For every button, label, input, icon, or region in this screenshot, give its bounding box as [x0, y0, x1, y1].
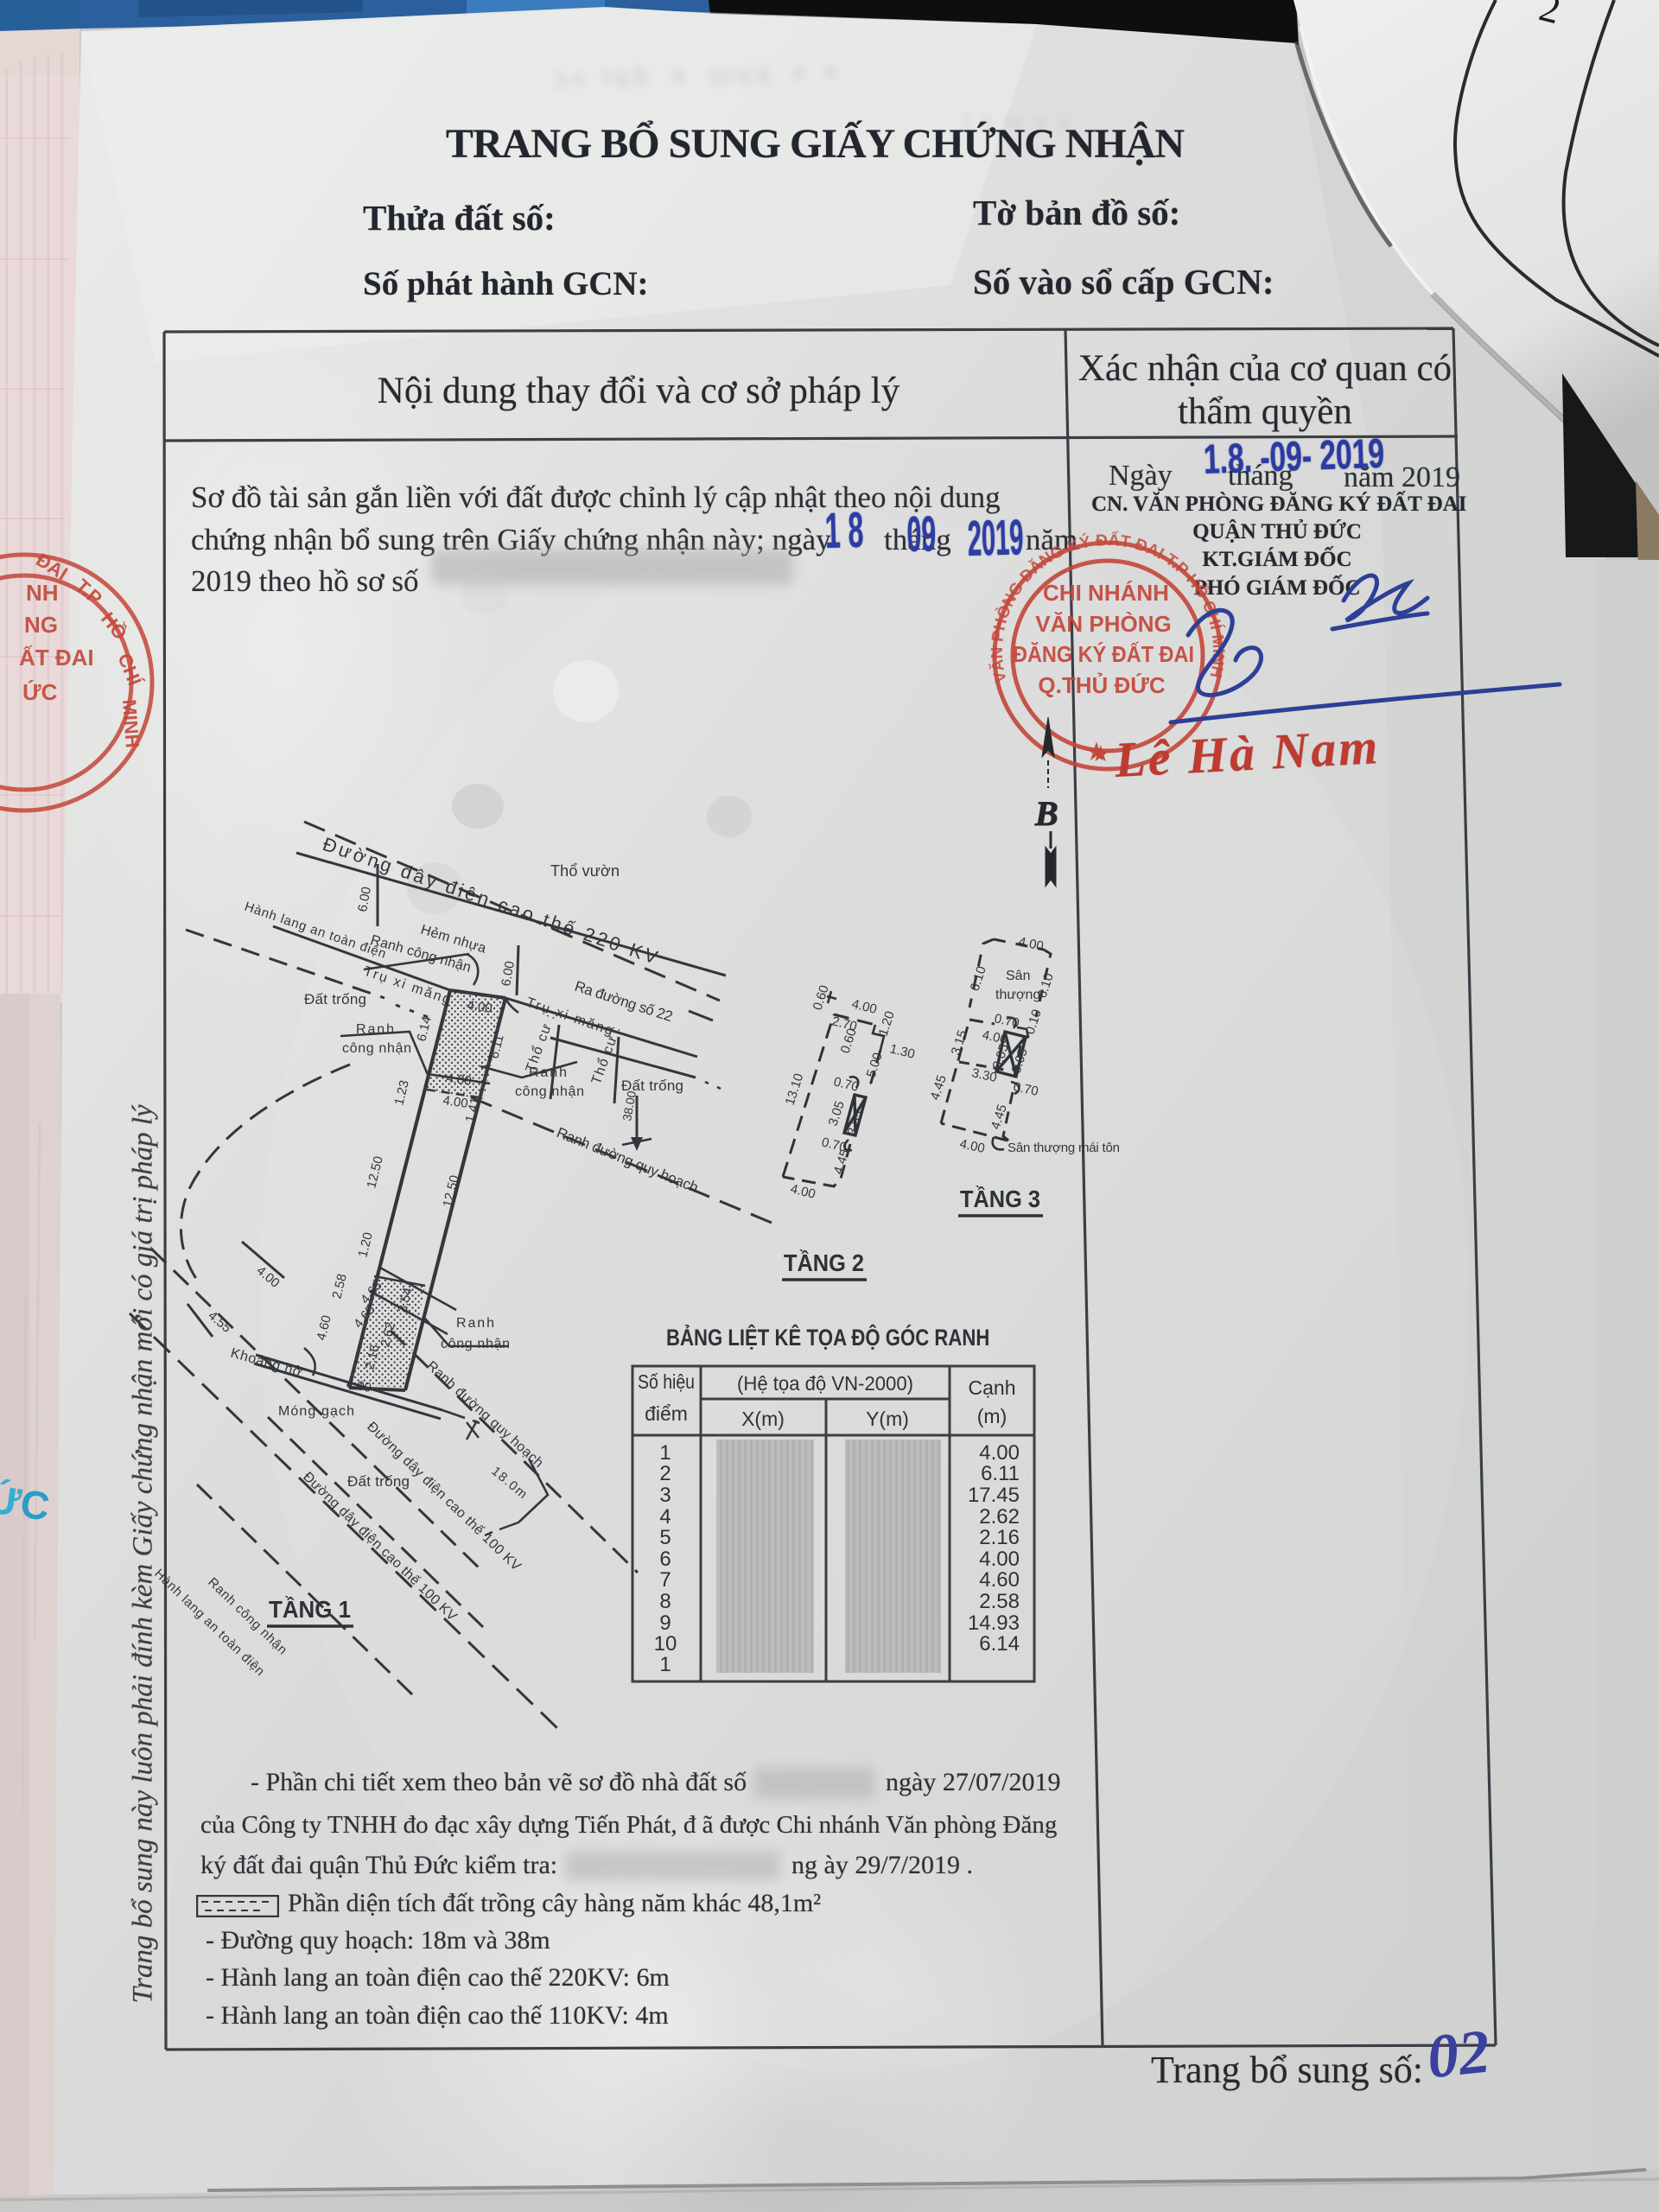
svg-text:8: 8	[659, 1590, 671, 1613]
svg-text:1: 1	[659, 1653, 671, 1676]
svg-text:Số hiệu: Số hiệu	[638, 1370, 695, 1393]
svg-text:4: 4	[659, 1505, 671, 1529]
svg-text:Cạnh: Cạnh	[969, 1376, 1016, 1399]
svg-text:2.16: 2.16	[979, 1526, 1020, 1549]
svg-text:2.58: 2.58	[979, 1590, 1020, 1613]
svg-text:6.14: 6.14	[979, 1632, 1020, 1656]
svg-text:6.11: 6.11	[981, 1462, 1020, 1485]
svg-text:4.00: 4.00	[979, 1548, 1020, 1571]
svg-text:(m): (m)	[977, 1405, 1007, 1427]
svg-text:X(m): X(m)	[741, 1408, 785, 1430]
svg-text:5: 5	[659, 1526, 671, 1549]
svg-text:10: 10	[654, 1632, 677, 1656]
svg-text:6: 6	[659, 1548, 671, 1571]
svg-text:17.45: 17.45	[968, 1484, 1020, 1507]
svg-text:2: 2	[659, 1462, 671, 1485]
svg-text:1: 1	[659, 1441, 671, 1465]
svg-text:7: 7	[659, 1568, 671, 1592]
svg-text:14.93: 14.93	[968, 1611, 1020, 1635]
svg-text:Y(m): Y(m)	[866, 1408, 909, 1430]
svg-text:2.62: 2.62	[979, 1505, 1020, 1529]
svg-text:3: 3	[659, 1484, 671, 1507]
svg-text:điểm: điểm	[645, 1402, 688, 1425]
svg-text:4.60: 4.60	[979, 1568, 1020, 1592]
svg-text:4.00: 4.00	[979, 1441, 1020, 1465]
svg-text:(Hệ tọa độ VN-2000): (Hệ tọa độ VN-2000)	[737, 1372, 913, 1395]
svg-text:9: 9	[659, 1611, 671, 1635]
